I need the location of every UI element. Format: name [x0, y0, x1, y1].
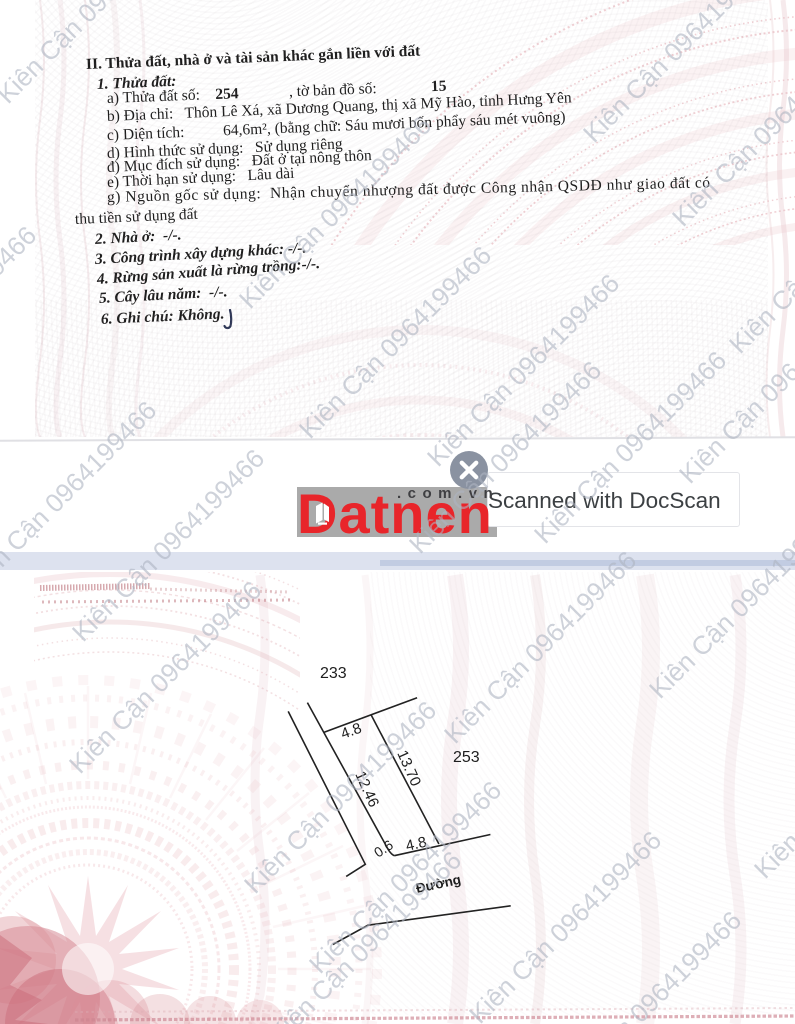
svg-text:Kiên Cận 0964199466: Kiên Cận 0964199466 — [263, 845, 467, 1024]
svg-text:Kiên Cận 0964199466: Kiên Cận 0964199466 — [233, 110, 437, 314]
svg-text:Kiên Cận 0964199466: Kiên Cận 0964199466 — [0, 0, 195, 109]
svg-text:Kiên Cận 0964199466: Kiên Cận 0964199466 — [0, 220, 42, 424]
svg-text:Kiên Cận 0964199466: Kiên Cận 0964199466 — [723, 155, 795, 359]
svg-text:Kiên Cận 0964199466: Kiên Cận 0964199466 — [643, 500, 795, 704]
svg-text:Kiên Cận 0964199466: Kiên Cận 0964199466 — [438, 545, 642, 749]
svg-text:Kiên Cận 0964199466: Kiên Cận 0964199466 — [748, 680, 795, 884]
